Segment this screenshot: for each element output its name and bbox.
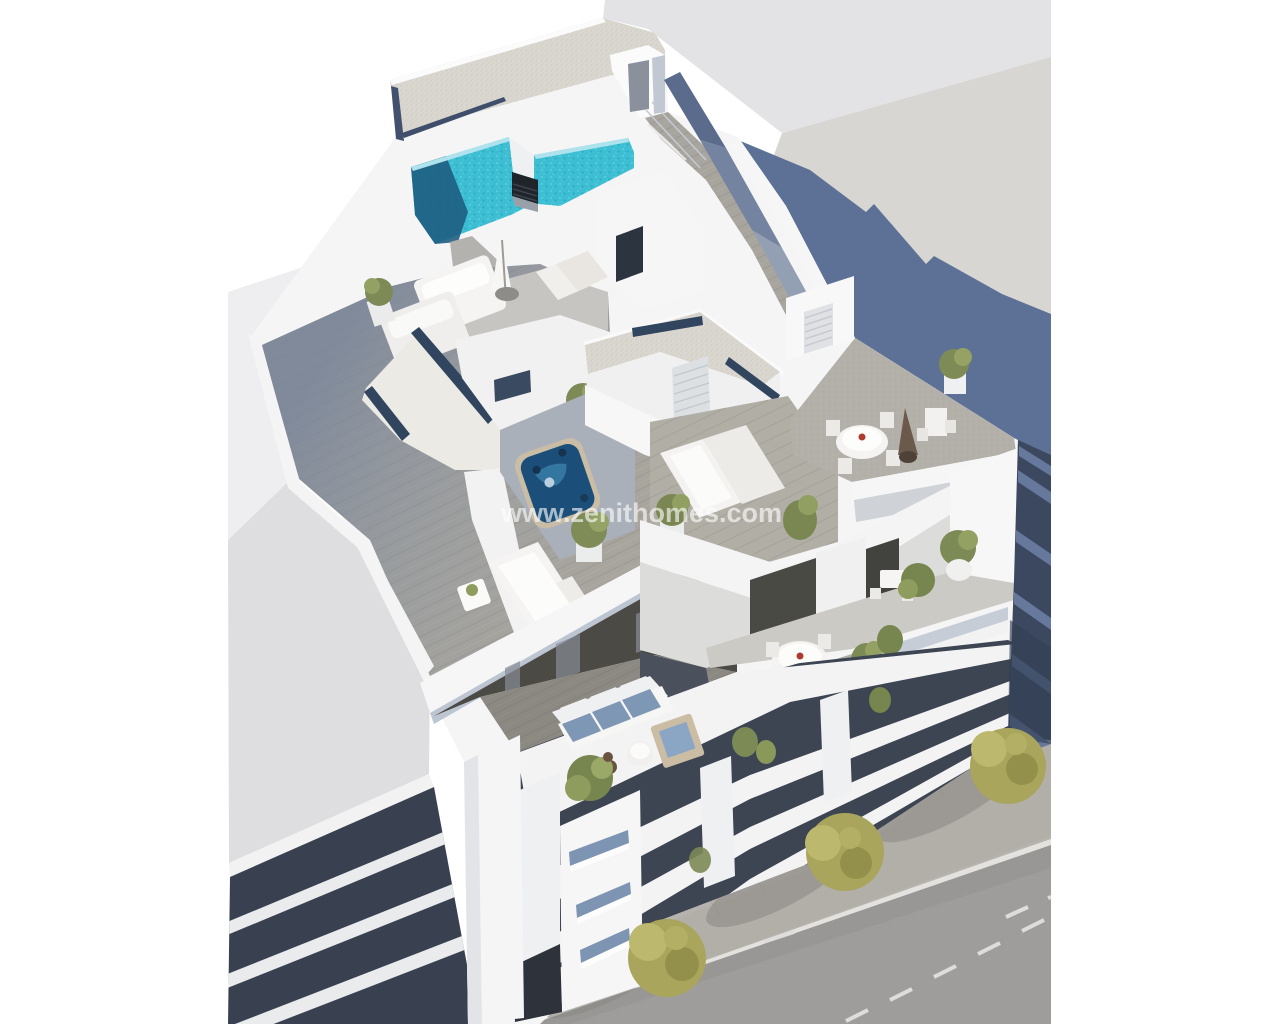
svg-text:www.zenithomes.com: www.zenithomes.com bbox=[500, 498, 782, 528]
